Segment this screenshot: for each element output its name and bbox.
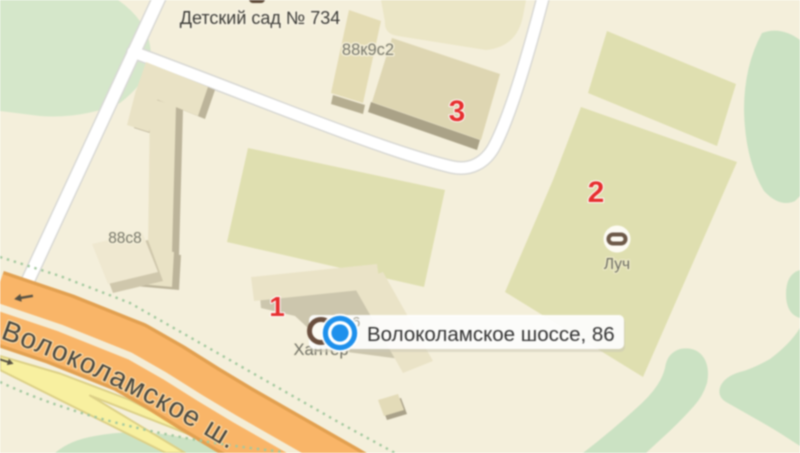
svg-text:2: 2 [588,176,605,209]
svg-text:Луч: Луч [604,256,630,273]
svg-text:3: 3 [449,95,466,128]
svg-text:1: 1 [269,291,285,322]
svg-text:Детский сад № 734: Детский сад № 734 [180,8,341,28]
svg-text:88к9с2: 88к9с2 [342,41,394,59]
svg-text:88с8: 88с8 [108,230,142,247]
svg-text:Волоколамское шоссе, 86: Волоколамское шоссе, 86 [367,323,615,346]
